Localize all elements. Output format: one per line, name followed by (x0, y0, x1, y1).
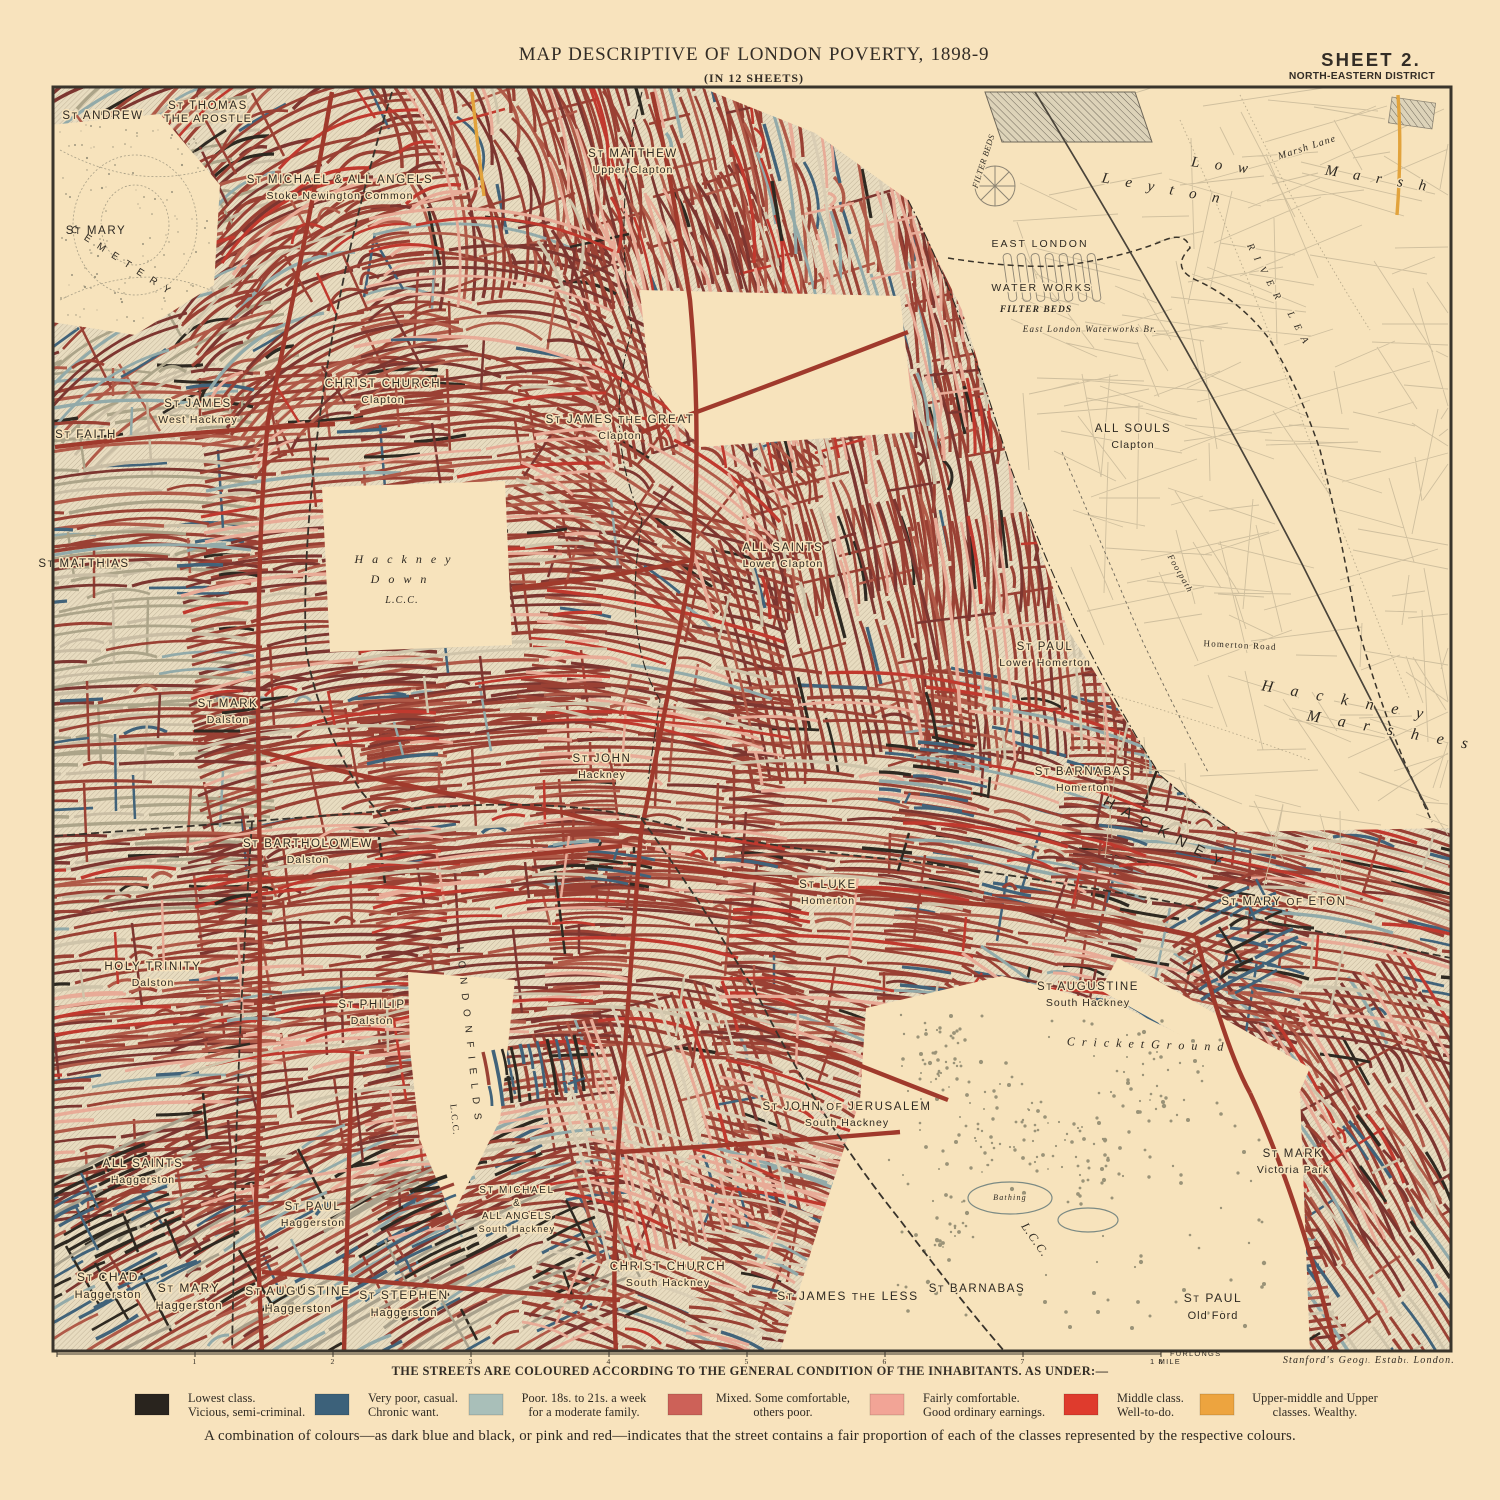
svg-text:Lowest class.: Lowest class. (188, 1391, 256, 1405)
svg-text:South Hackney: South Hackney (479, 1224, 556, 1234)
svg-text:Homerton: Homerton (801, 895, 855, 907)
svg-text:H a c k n e y: H a c k n e y (354, 552, 454, 566)
svg-text:Fairly comfortable.: Fairly comfortable. (923, 1391, 1020, 1405)
svg-text:ST MARY: ST MARY (158, 1281, 221, 1295)
svg-text:ST JAMES: ST JAMES (164, 398, 232, 410)
svg-text:Dalston: Dalston (287, 854, 330, 866)
svg-text:ST JAMES THE GREAT: ST JAMES THE GREAT (546, 414, 695, 426)
svg-text:Haggerston: Haggerston (75, 1289, 142, 1301)
svg-text:ST BARNABAS: ST BARNABAS (929, 1283, 1026, 1295)
svg-text:ST MICHAEL: ST MICHAEL (479, 1185, 554, 1196)
svg-text:ST THOMAS: ST THOMAS (168, 100, 248, 112)
svg-text:Chronic want.: Chronic want. (368, 1405, 439, 1419)
svg-text:CHRIST CHURCH: CHRIST CHURCH (610, 1261, 726, 1273)
svg-text:Clapton: Clapton (361, 394, 404, 406)
svg-text:Clapton: Clapton (598, 430, 641, 442)
svg-text:ST AUGUSTINE: ST AUGUSTINE (245, 1284, 350, 1298)
svg-text:EAST LONDON: EAST LONDON (991, 238, 1088, 250)
svg-text:Haggerston: Haggerston (156, 1300, 223, 1312)
svg-text:CHRIST CHURCH: CHRIST CHURCH (325, 378, 441, 390)
svg-text:Bathing: Bathing (993, 1193, 1027, 1202)
svg-text:ST MICHAEL & ALL ANGELS: ST MICHAEL & ALL ANGELS (247, 174, 434, 186)
svg-text:ST PAUL: ST PAUL (285, 1201, 342, 1213)
svg-text:ST PAUL: ST PAUL (1017, 641, 1074, 653)
svg-text:1: 1 (193, 1357, 198, 1366)
svg-text:A combination of colours—as da: A combination of colours—as dark blue an… (204, 1428, 1296, 1444)
svg-text:Vicious, semi-criminal.: Vicious, semi-criminal. (188, 1405, 305, 1419)
svg-text:SHEET 2.: SHEET 2. (1321, 49, 1421, 70)
svg-text:South Hackney: South Hackney (626, 1277, 710, 1289)
svg-text:Upper-middle and Upper: Upper-middle and Upper (1252, 1391, 1378, 1405)
svg-text:West Hackney: West Hackney (158, 414, 238, 426)
svg-text:ALL SAINTS: ALL SAINTS (103, 1158, 184, 1170)
svg-text:Stanford's Geogl. Estabt. Lond: Stanford's Geogl. Estabt. London. (1283, 1355, 1455, 1366)
svg-text:Victoria Park: Victoria Park (1257, 1164, 1329, 1176)
svg-text:ST JAMES THE LESS: ST JAMES THE LESS (777, 1289, 918, 1303)
svg-text:Dalston: Dalston (132, 977, 175, 989)
svg-text:D o w n: D o w n (370, 572, 430, 586)
svg-text:THE APOSTLE: THE APOSTLE (164, 113, 252, 125)
svg-text:ST JOHN OF JERUSALEM: ST JOHN OF JERUSALEM (763, 1101, 932, 1113)
svg-text:East London Waterworks Br.: East London Waterworks Br. (1022, 324, 1157, 334)
svg-text:&: & (513, 1198, 521, 1209)
svg-text:Poor. 18s. to 21s. a week: Poor. 18s. to 21s. a week (522, 1391, 648, 1405)
svg-text:2: 2 (331, 1357, 336, 1366)
svg-text:ST PHILIP: ST PHILIP (338, 999, 405, 1011)
svg-text:South Hackney: South Hackney (1046, 997, 1130, 1009)
svg-text:FILTER BEDS: FILTER BEDS (999, 305, 1072, 315)
svg-text:1 MILE: 1 MILE (1150, 1357, 1181, 1366)
svg-text:Haggerston: Haggerston (371, 1307, 438, 1319)
svg-text:ST BARNABAS: ST BARNABAS (1035, 766, 1132, 778)
svg-text:South Hackney: South Hackney (805, 1117, 889, 1129)
svg-text:THE STREETS ARE COLOURED A: THE STREETS ARE COLOURED ACCORDING TO TH… (392, 1364, 1109, 1378)
svg-text:Homerton: Homerton (1056, 782, 1110, 794)
svg-text:Well-to-do.: Well-to-do. (1117, 1405, 1174, 1419)
svg-text:Middle class.: Middle class. (1117, 1391, 1184, 1405)
svg-text:ST FAITH: ST FAITH (55, 429, 117, 441)
svg-text:Dalston: Dalston (351, 1015, 394, 1027)
svg-text:ST ANDREW: ST ANDREW (62, 110, 143, 122)
svg-text:classes. Wealthy.: classes. Wealthy. (1273, 1405, 1358, 1419)
svg-text:ST BARTHOLOMEW: ST BARTHOLOMEW (243, 838, 373, 850)
svg-text:ST CHAD: ST CHAD (77, 1270, 139, 1284)
svg-text:MAP DESCRIPTIVE OF LONDON: MAP DESCRIPTIVE OF LONDON POVERTY, 1898-… (519, 44, 990, 65)
svg-text:Old Ford: Old Ford (1188, 1310, 1239, 1322)
svg-text:ST MARK: ST MARK (1263, 1148, 1324, 1160)
svg-text:ALL SOULS: ALL SOULS (1095, 423, 1172, 435)
svg-text:ST STEPHEN: ST STEPHEN (359, 1288, 449, 1302)
svg-text:Mixed. Some comfortable,: Mixed. Some comfortable, (716, 1391, 850, 1405)
svg-text:Stoke Newington Common: Stoke Newington Common (267, 190, 414, 202)
svg-text:for a moderate family.: for a moderate family. (528, 1405, 639, 1419)
svg-text:ST MARK: ST MARK (198, 698, 259, 710)
svg-text:Upper Clapton: Upper Clapton (593, 164, 674, 176)
svg-text:Haggerston: Haggerston (111, 1174, 175, 1186)
svg-text:WATER WORKS: WATER WORKS (991, 282, 1092, 294)
svg-text:ST JOHN: ST JOHN (573, 753, 632, 765)
svg-text:Haggerston: Haggerston (281, 1217, 345, 1229)
svg-text:Dalston: Dalston (207, 714, 250, 726)
svg-text:Clapton: Clapton (1111, 439, 1154, 451)
svg-text:Very poor, casual.: Very poor, casual. (368, 1391, 458, 1405)
svg-text:NORTH-EASTERN DISTRICT: NORTH-EASTERN DISTRICT (1289, 71, 1436, 82)
svg-text:ST AUGUSTINE: ST AUGUSTINE (1037, 981, 1139, 993)
svg-text:Hackney: Hackney (578, 769, 626, 781)
svg-text:others poor.: others poor. (753, 1405, 812, 1419)
svg-text:Lower Clapton: Lower Clapton (743, 558, 824, 570)
svg-text:ST LUKE: ST LUKE (799, 879, 857, 891)
svg-text:Haggerston: Haggerston (265, 1303, 332, 1315)
svg-text:ST MATTHEW: ST MATTHEW (588, 148, 678, 160)
svg-text:ALL SAINTS: ALL SAINTS (743, 542, 824, 554)
svg-text:(IN 12 SHEETS): (IN 12 SHEETS) (704, 71, 804, 85)
svg-text:Good ordinary earnings.: Good ordinary earnings. (923, 1405, 1045, 1419)
svg-text:L.C.C.: L.C.C. (384, 595, 419, 606)
svg-text:ST PAUL: ST PAUL (1184, 1291, 1243, 1305)
svg-text:HOLY TRINITY: HOLY TRINITY (104, 961, 201, 973)
svg-text:Lower Homerton: Lower Homerton (999, 657, 1091, 669)
svg-text:ALL ANGELS: ALL ANGELS (482, 1211, 552, 1222)
svg-text:ST MARY OF ETON: ST MARY OF ETON (1221, 896, 1346, 908)
